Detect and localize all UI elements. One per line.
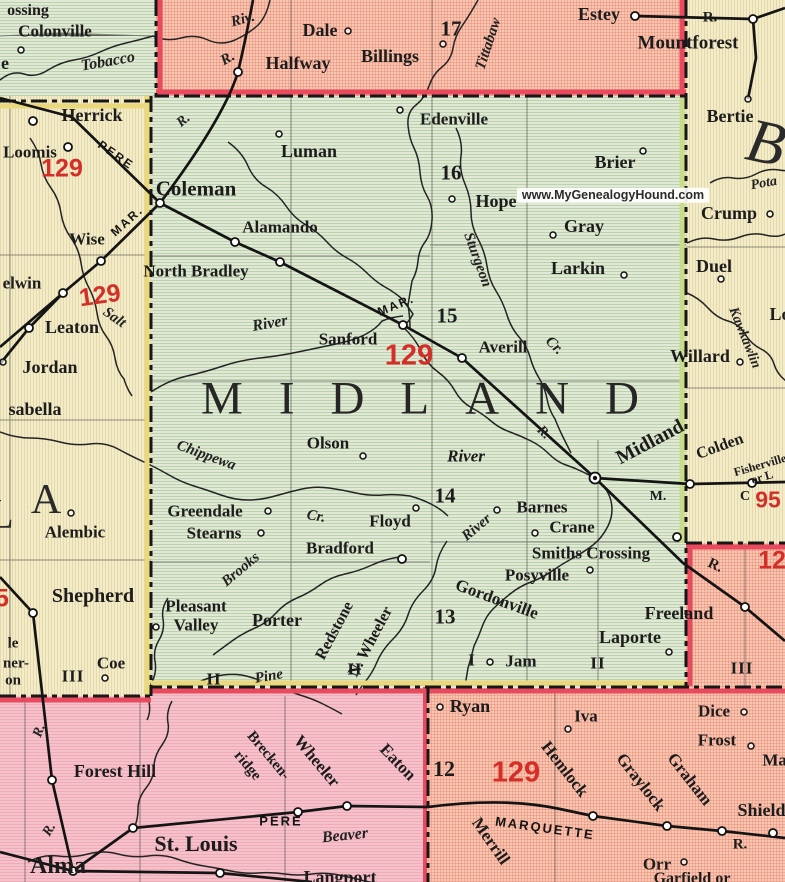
label-dice: Dice (698, 703, 730, 720)
label-brooks: Brooks (219, 550, 262, 590)
label-c: C (740, 490, 750, 504)
label-bertie: Bertie (707, 107, 754, 125)
label-pere: PERE (96, 138, 136, 171)
label-luman: Luman (281, 142, 337, 160)
label-valley: Valley (174, 617, 219, 634)
label-jordan: Jordan (22, 358, 77, 376)
label-14: 14 (435, 486, 456, 507)
label-ii: II (590, 655, 605, 672)
label-coe: Coe (97, 655, 125, 672)
label-pine: Pine (254, 667, 285, 687)
label-mal: Mal (762, 752, 785, 769)
label-a: A (31, 479, 61, 521)
label-graylock: Graylock (613, 750, 668, 814)
label-sabella: sabella (8, 400, 61, 418)
label-r: R. (31, 723, 49, 740)
label-pota: Pota (750, 175, 778, 193)
label-www-mygenealogyhound-com: www.MyGenealogyHound.com (517, 188, 709, 203)
label-r: R. (705, 556, 725, 576)
label-cr: Cr. (305, 508, 326, 526)
label-redstone: Redstone (313, 599, 357, 662)
label-porter: Porter (252, 611, 302, 629)
label-iii: III (731, 660, 754, 677)
label-forest-hill: Forest Hill (74, 762, 156, 780)
label-wheeler: Wheeler (291, 732, 343, 790)
label-floyd: Floyd (369, 513, 411, 530)
label-elwin: elwin (3, 275, 42, 292)
label-freeland: Freeland (645, 604, 714, 622)
label-15: 15 (437, 306, 458, 327)
label-m: M. (650, 490, 667, 504)
label-garfield-or: Garfield or (654, 871, 731, 882)
label-alma: Alma (30, 854, 86, 878)
label-laporte: Laporte (599, 628, 661, 646)
map-root: ossingColonvilleeTobaccoRiv.R.DaleHalfwa… (0, 0, 785, 882)
label-bradford: Bradford (306, 540, 374, 557)
label-graham: Graham (664, 750, 715, 809)
label-colden: Colden (694, 431, 745, 463)
label-shepherd: Shepherd (52, 586, 134, 606)
label-mountforest: Mountforest (638, 34, 739, 53)
label-crump: Crump (701, 204, 757, 222)
label-alembic: Alembic (45, 524, 105, 541)
label-13: 13 (435, 607, 456, 628)
label-langport: Langport (303, 868, 376, 882)
label-estey: Estey (578, 5, 620, 23)
label-129: 129 (492, 759, 540, 788)
label-eaton: Eaton (377, 740, 419, 783)
label-iva: Iva (574, 708, 598, 725)
label-jam: Jam (505, 653, 536, 670)
label-r: R. (534, 424, 553, 443)
label-duel: Duel (696, 257, 732, 275)
label-sturgeon: Sturgeon (460, 231, 493, 289)
label-129: 129 (78, 281, 123, 312)
label-wise: Wise (69, 231, 105, 248)
label-frost: Frost (698, 732, 736, 749)
label-riv: Riv. (229, 10, 256, 31)
label-cr: Cr. (542, 334, 566, 358)
label-marquette: MARQUETTE (494, 815, 595, 842)
label-r: R. (733, 838, 748, 853)
label-edenville: Edenville (420, 111, 488, 128)
label-iii: III (62, 668, 85, 685)
label-herrick: Herrick (62, 106, 123, 124)
label-ryan: Ryan (450, 697, 490, 715)
label-river: River (447, 448, 485, 465)
label-tittabaw: Tittabaw (474, 16, 505, 72)
label-pleasant: Pleasant (165, 598, 226, 615)
label-shields: Shields (737, 801, 785, 819)
label-posyville: Posyville (505, 567, 569, 584)
label-95: 95 (755, 489, 781, 512)
label-hope: Hope (475, 192, 516, 210)
label-colonville: Colonville (18, 23, 92, 40)
label-alamando: Alamando (242, 219, 318, 236)
label-ii: II (206, 671, 221, 688)
label-12: 12 (433, 758, 455, 780)
label-larkin: Larkin (551, 259, 605, 277)
label-olson: Olson (307, 435, 350, 452)
label-brier: Brier (595, 153, 636, 171)
label-midland: MIDLAND (201, 376, 675, 423)
label-17: 17 (441, 19, 462, 40)
label-mar: MAR. (109, 204, 146, 239)
label-16: 16 (441, 163, 462, 184)
label-leaton: Leaton (45, 318, 99, 336)
label-lo: Lo (769, 305, 785, 323)
label-i: I (468, 652, 476, 669)
label-ii: II (347, 661, 362, 678)
label-billings: Billings (361, 47, 419, 65)
label-willard: Willard (670, 347, 730, 365)
label-r: R. (175, 112, 194, 131)
label-stearns: Stearns (187, 525, 242, 542)
label-barnes: Barnes (517, 499, 568, 516)
label-halfway: Halfway (266, 54, 331, 72)
label-129: 129 (758, 549, 785, 574)
label-129: 129 (385, 342, 433, 371)
label-on: on (5, 674, 21, 689)
label-river: River (251, 313, 289, 335)
map-labels-layer: ossingColonvilleeTobaccoRiv.R.DaleHalfwa… (0, 0, 785, 882)
label-ner: ner- (3, 657, 29, 672)
label-crane: Crane (549, 519, 594, 536)
label-mar: MAR. (376, 292, 416, 318)
label-tobacco: Tobacco (80, 49, 136, 74)
label-beaver: Beaver (321, 826, 369, 847)
label-chippewa: Chippewa (174, 438, 237, 473)
label-r: R. (703, 11, 718, 26)
label-5: 5 (0, 587, 9, 612)
label-dale: Dale (303, 21, 338, 39)
label-sanford: Sanford (319, 331, 378, 348)
label-averill: Averill (479, 339, 528, 356)
label-r: R. (218, 49, 237, 69)
label-r: R. (41, 821, 60, 839)
label-le: le (8, 637, 19, 652)
label-coleman: Coleman (156, 179, 237, 200)
label-north-bradley: North Bradley (143, 263, 248, 280)
label-salt: Salt (100, 305, 128, 331)
label-129: 129 (41, 157, 83, 182)
label-gray: Gray (564, 217, 604, 235)
label-greendale: Greendale (167, 503, 242, 520)
label-river: River (459, 512, 494, 545)
label-kawkawlin: Kawkawlin (725, 305, 762, 370)
label-st-louis: St. Louis (154, 833, 237, 855)
label-smiths-crossing: Smiths Crossing (532, 545, 650, 562)
label-l: L (0, 494, 14, 536)
label-pere: PERE (259, 815, 302, 828)
label-ossing: ossing (7, 3, 49, 19)
label-hemlock: Hemlock (538, 738, 592, 800)
label-e: e (1, 54, 9, 72)
